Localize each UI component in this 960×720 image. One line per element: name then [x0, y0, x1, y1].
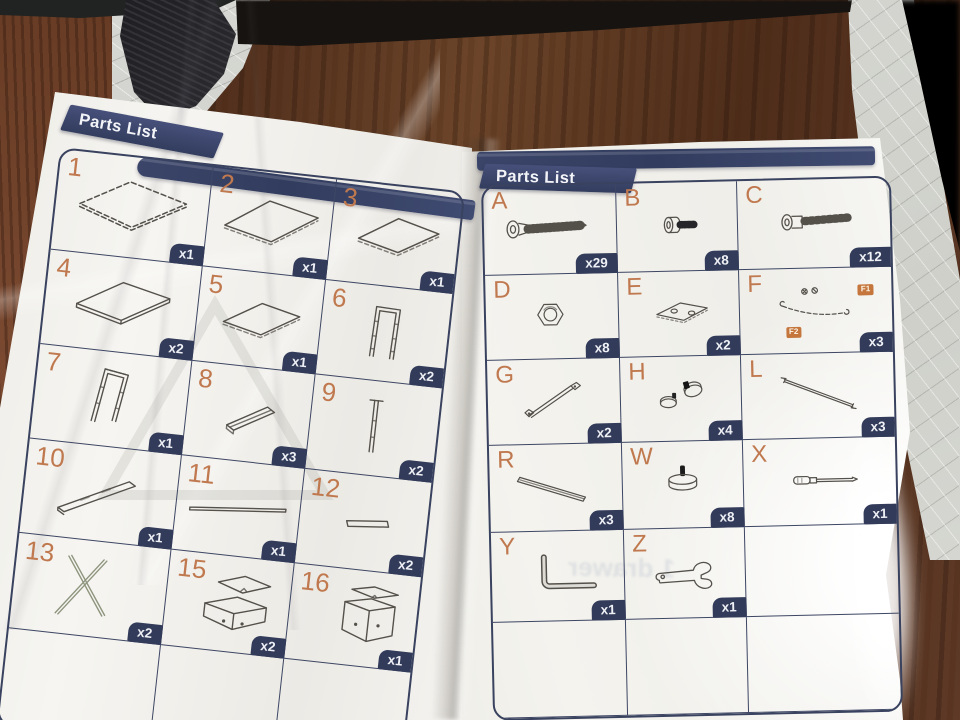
- photo-scene: 1 drawer Parts List Parts List 1x12x13x1…: [0, 0, 960, 720]
- quantity-badge: x12: [850, 246, 892, 267]
- part-cell-R: Rx3: [489, 443, 624, 533]
- quantity-badge: x4: [708, 420, 742, 441]
- quantity-badge: x2: [706, 335, 740, 356]
- part-cell-2: 2x1: [203, 166, 337, 280]
- part-cell-9: 9x2: [305, 374, 442, 482]
- bracket-bar-icon: [491, 367, 616, 430]
- part-cell-3: 3x1: [326, 180, 463, 294]
- part-cell-11: 11x1: [171, 455, 305, 563]
- sub-part-tag: F1: [858, 284, 874, 295]
- part-cell-5: 5x1: [192, 266, 326, 374]
- part-cell-12: 12x2: [295, 469, 432, 577]
- hex-nut-icon: [489, 282, 614, 345]
- part-cell-Z: Zx1: [624, 527, 747, 620]
- square-bar-icon: [493, 452, 618, 517]
- foot-glide-icon: [626, 449, 739, 514]
- drawer-box-icon: [167, 559, 289, 642]
- quantity-badge: x8: [710, 507, 744, 528]
- plate-two-holes-icon: [622, 279, 735, 342]
- part-cell-1: 1x1: [51, 149, 214, 266]
- part-cell-C: Cx12: [737, 178, 891, 270]
- sub-part-tag: F2: [786, 327, 802, 338]
- empty-cell: [626, 617, 749, 716]
- quantity-badge: x3: [589, 509, 623, 530]
- part-cell-A: Ax29: [483, 184, 618, 276]
- quantity-badge: x3: [859, 331, 893, 352]
- bar-stub-icon: [188, 370, 310, 452]
- right-parts-grid: Ax29Bx8Cx12Dx8Ex2Fx3F1F2Gx2Hx4Lx3Rx3Wx8X…: [481, 176, 903, 720]
- empty-cell: [150, 645, 284, 720]
- quantity-badge: x1: [863, 503, 897, 524]
- wrench-icon: [628, 536, 741, 604]
- bolt-short-icon: [620, 190, 733, 257]
- empty-cell: [0, 628, 161, 720]
- empty-cell: [745, 524, 899, 617]
- tall-box-icon: [290, 573, 416, 657]
- u-frame-narrow-icon: [321, 289, 447, 372]
- quantity-badge: x8: [705, 250, 739, 271]
- part-cell-15: 15x2: [161, 550, 295, 659]
- panel-med-icon: [208, 175, 331, 263]
- part-cell-D: Dx8: [485, 273, 620, 361]
- part-cell-Y: Yx1: [491, 530, 626, 623]
- part-cell-8: 8x3: [182, 361, 316, 469]
- quantity-badge: x1: [591, 599, 625, 620]
- part-cell-13: 13x2: [9, 533, 172, 645]
- part-cell-G: Gx2: [487, 358, 622, 446]
- part-cell-X: Xx1: [743, 437, 897, 527]
- panel-long-icon: [56, 159, 207, 250]
- bar-long-icon: [177, 465, 299, 547]
- quantity-badge: x3: [861, 416, 895, 437]
- empty-cell: [493, 620, 628, 719]
- part-cell-W: Wx8: [622, 440, 745, 530]
- part-cell-L: Lx3: [741, 352, 895, 440]
- empty-cell: [747, 614, 901, 713]
- quantity-badge: x29: [576, 252, 618, 273]
- part-cell-B: Bx8: [616, 181, 739, 273]
- panel-small-icon: [332, 189, 459, 278]
- u-frame-tall-icon: [36, 353, 187, 438]
- quantity-badge: x8: [585, 337, 619, 358]
- allen-key-icon: [495, 539, 620, 607]
- part-cell-10: 10x1: [19, 438, 182, 549]
- quantity-badge: x2: [587, 422, 621, 443]
- part-cell-16: 16x1: [284, 563, 421, 672]
- part-cell-6: 6x2: [316, 280, 453, 388]
- part-cell-7: 7x1: [30, 344, 193, 455]
- driver-tool-icon: [747, 446, 892, 511]
- part-cell-E: Ex2: [618, 270, 741, 358]
- quantity-badge: x1: [712, 597, 746, 618]
- screw-long-icon: [487, 193, 612, 260]
- rods-crossed-icon: [15, 542, 166, 628]
- round-caps-icon: [624, 364, 737, 427]
- bar-angled-icon: [25, 448, 176, 533]
- part-cell-H: Hx4: [620, 355, 743, 443]
- thin-rod-icon: [745, 361, 890, 424]
- bar-flat-short-icon: [300, 478, 426, 561]
- part-cell-4: 4x2: [40, 250, 203, 361]
- panel-thin-icon: [198, 276, 320, 358]
- part-cell-F: Fx3F1F2: [739, 267, 893, 355]
- screw-coarse-icon: [741, 187, 886, 254]
- pole-icon: [311, 384, 437, 467]
- panel-thick-icon: [46, 259, 197, 344]
- left-parts-grid: 1x12x13x14x25x16x27x18x39x210x111x112x21…: [0, 147, 466, 720]
